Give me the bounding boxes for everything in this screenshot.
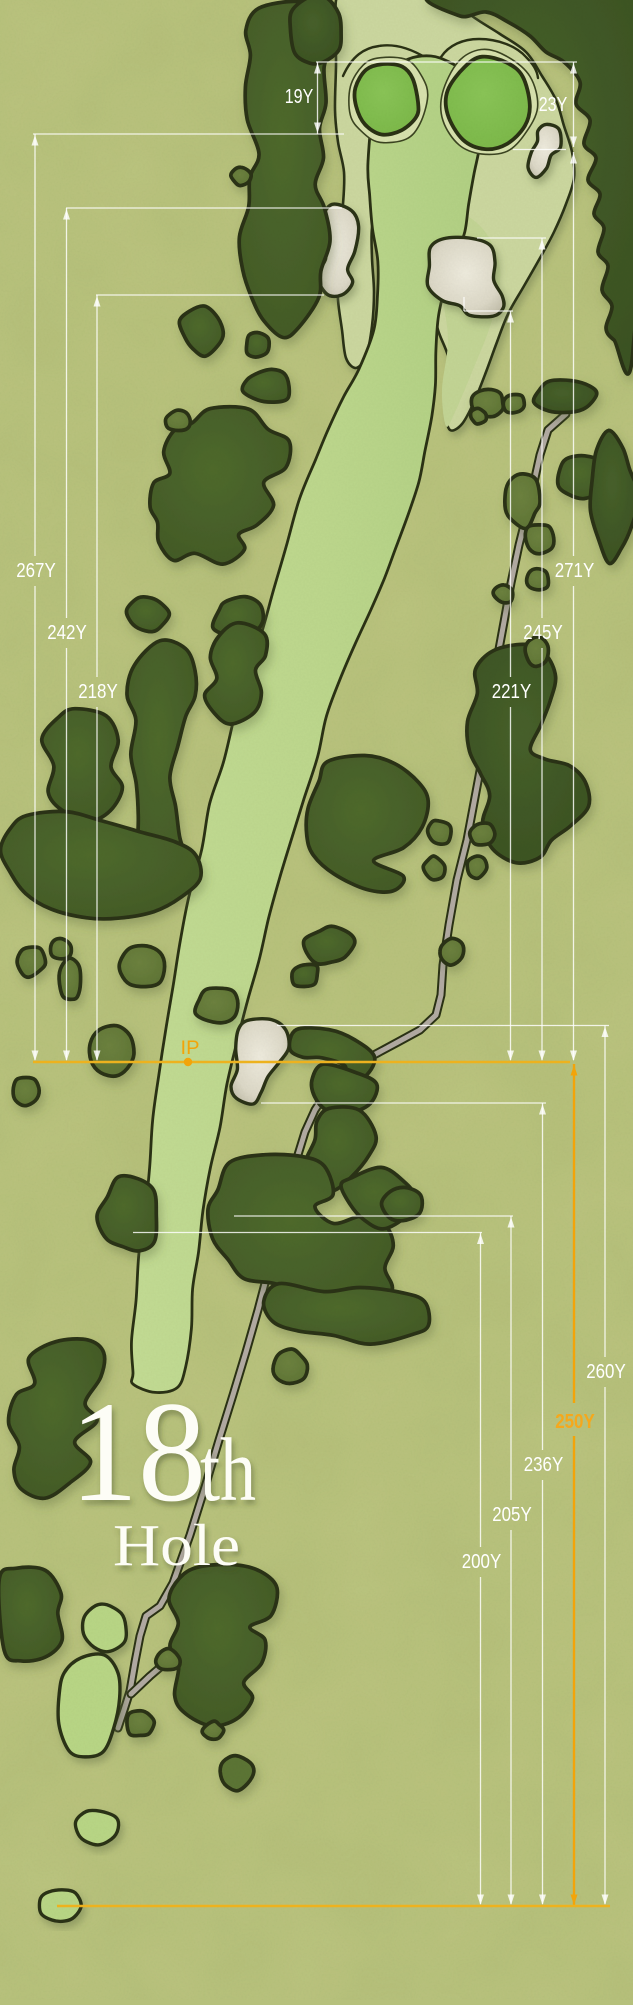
svg-text:Hole: Hole [113, 1512, 240, 1578]
svg-text:18: 18 [70, 1373, 206, 1532]
svg-text:271Y: 271Y [555, 560, 595, 582]
svg-text:245Y: 245Y [523, 622, 563, 644]
svg-text:250Y: 250Y [555, 1411, 595, 1433]
svg-text:IP: IP [181, 1037, 200, 1059]
svg-text:205Y: 205Y [492, 1504, 532, 1526]
svg-text:260Y: 260Y [586, 1361, 626, 1383]
svg-text:th: th [200, 1421, 256, 1520]
svg-text:267Y: 267Y [16, 560, 56, 582]
svg-text:242Y: 242Y [47, 622, 87, 644]
svg-text:19Y: 19Y [285, 86, 314, 108]
svg-text:221Y: 221Y [492, 681, 532, 703]
svg-text:218Y: 218Y [78, 681, 118, 703]
svg-text:23Y: 23Y [539, 94, 568, 116]
svg-text:200Y: 200Y [462, 1551, 502, 1573]
svg-text:236Y: 236Y [524, 1454, 564, 1476]
